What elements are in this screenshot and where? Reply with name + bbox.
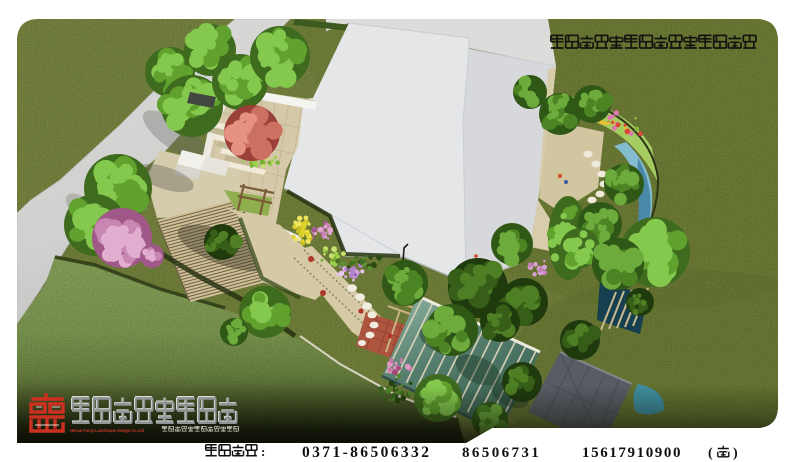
svg-text:(: (	[708, 446, 713, 461]
svg-text:0371-86506332: 0371-86506332	[302, 444, 431, 461]
svg-text:86506731: 86506731	[462, 445, 541, 461]
svg-text:Henan Fanyi Landscape design C: Henan Fanyi Landscape design Co.Ltd	[70, 428, 144, 433]
svg-text:): )	[733, 446, 738, 461]
svg-text:15617910900: 15617910900	[582, 445, 682, 461]
svg-text::: :	[261, 444, 265, 459]
